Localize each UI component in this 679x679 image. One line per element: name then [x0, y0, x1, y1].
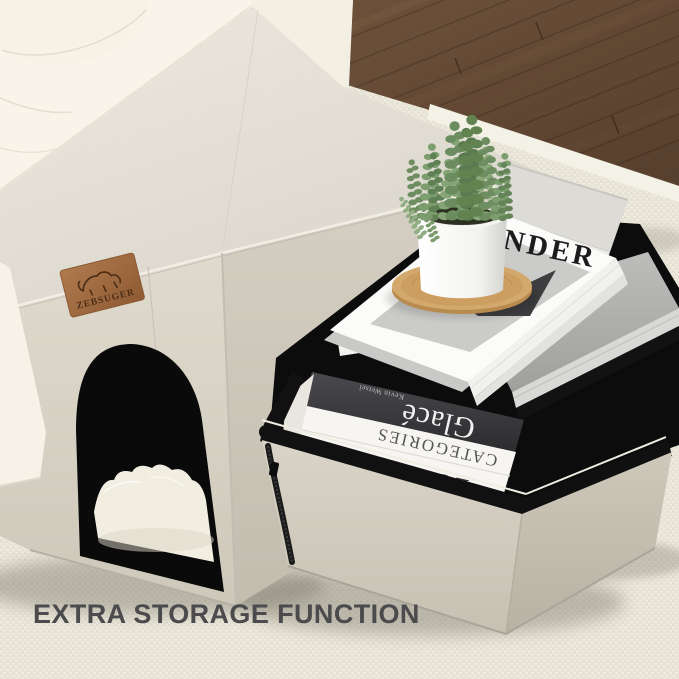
scene-illustration: ZEBSUGER Glacé Kevin Wetsel [0, 0, 679, 679]
product-photo: ZEBSUGER Glacé Kevin Wetsel [0, 0, 679, 679]
caption-text: EXTRA STORAGE FUNCTION [33, 599, 420, 630]
